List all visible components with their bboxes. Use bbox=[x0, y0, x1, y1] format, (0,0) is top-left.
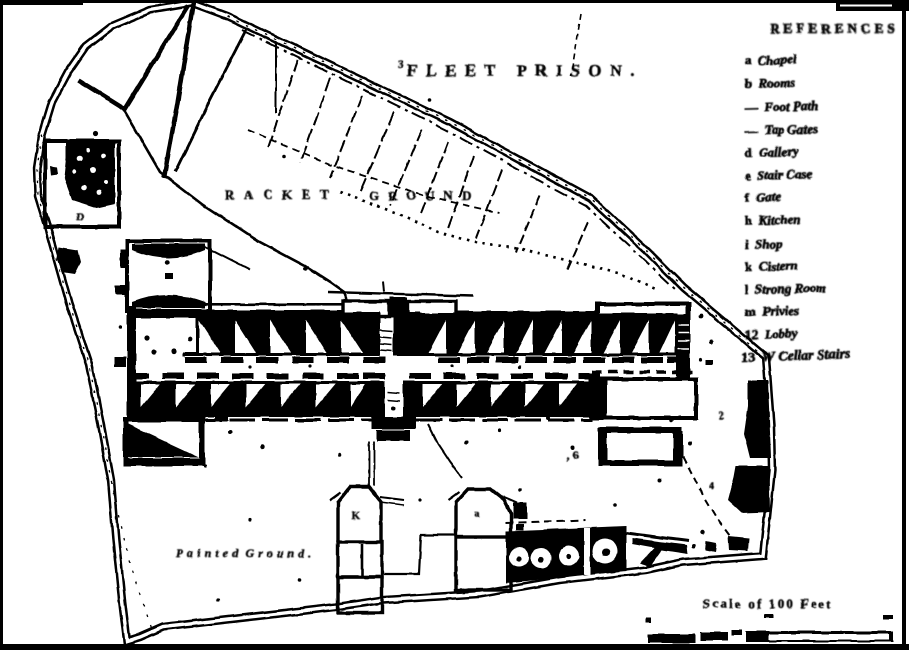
svg-text:4: 4 bbox=[709, 481, 714, 492]
svg-text:2: 2 bbox=[719, 411, 724, 422]
svg-text:a Chapel: a Chapel bbox=[745, 52, 797, 68]
svg-text:R A C K E T: R A C K E T bbox=[225, 187, 332, 202]
svg-text:i Shop: i Shop bbox=[745, 236, 783, 252]
svg-text:— Tap Gates: — Tap Gates bbox=[744, 121, 818, 138]
svg-text:e Stair Case: e Stair Case bbox=[745, 166, 813, 183]
svg-text:D: D bbox=[76, 211, 84, 223]
svg-text:K: K bbox=[352, 510, 361, 522]
svg-text:R E F E R E N C E S: R E F E R E N C E S bbox=[770, 21, 895, 36]
svg-text:h Kitchen: h Kitchen bbox=[745, 212, 801, 228]
svg-text:— Foot Path: — Foot Path bbox=[744, 98, 819, 115]
svg-text:d Gallery: d Gallery bbox=[745, 144, 799, 160]
svg-text:f Gate: f Gate bbox=[745, 189, 782, 205]
svg-text:b Rooms: b Rooms bbox=[745, 75, 796, 91]
svg-text:P a i n t e d G r o u n d .: P a i n t e d G r o u n d . bbox=[176, 546, 312, 560]
svg-text:‚ 6: ‚ 6 bbox=[566, 448, 579, 462]
svg-text:m Privies: m Privies bbox=[745, 303, 800, 319]
svg-text:12 Lobby: 12 Lobby bbox=[745, 326, 798, 342]
svg-text:Scale of 100 Feet: Scale of 100 Feet bbox=[703, 596, 833, 611]
svg-text:G R O U N D: G R O U N D bbox=[369, 188, 474, 203]
svg-text:3: 3 bbox=[398, 59, 404, 71]
svg-text:F L E E T P R I S O N .: F L E E T P R I S O N . bbox=[407, 61, 636, 80]
svg-text:k Cistern: k Cistern bbox=[745, 258, 798, 274]
svg-text:a: a bbox=[474, 508, 480, 520]
svg-text:l Strong Room: l Strong Room bbox=[745, 280, 827, 297]
